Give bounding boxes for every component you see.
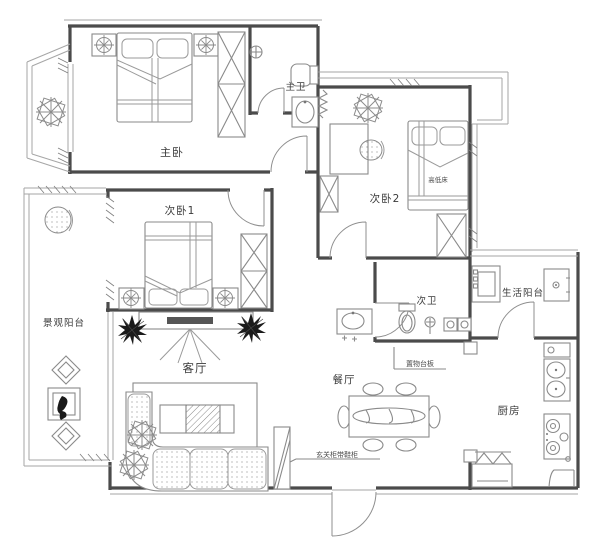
room-label-master-bathroom: 主卫 xyxy=(285,81,306,93)
room-label-living-room: 客厅 xyxy=(183,361,208,375)
dining-chair xyxy=(396,439,416,451)
room-label-dining-room: 餐厅 xyxy=(333,373,356,386)
label-leader-line xyxy=(290,459,380,462)
coffee-table xyxy=(186,405,220,433)
annotation-bunk-bed: 高低床 xyxy=(428,175,448,184)
kitchen-cabinet xyxy=(472,464,512,487)
bedroom-1-wardrobe xyxy=(241,234,267,308)
plant-icon xyxy=(353,93,383,123)
bed xyxy=(145,222,212,308)
room-label-bedroom-1: 次卧1 xyxy=(165,204,196,217)
master-bathroom-fixtures xyxy=(250,46,318,127)
toilet-tank xyxy=(399,304,415,311)
master-bedroom-furniture xyxy=(92,32,245,137)
bedroom-2-wardrobe xyxy=(437,214,466,257)
diamond-decor xyxy=(52,422,80,450)
master-bathroom-door xyxy=(258,88,284,113)
room-label-bedroom-2: 次卧2 xyxy=(370,192,401,205)
dining-table xyxy=(349,396,429,437)
dining-chair xyxy=(363,439,383,451)
hallway-closet xyxy=(320,176,338,212)
bedroom-2-door xyxy=(330,222,366,258)
toilet-tank xyxy=(310,66,318,84)
entry-shoe-cabinet xyxy=(274,427,290,489)
sofa-pillow xyxy=(127,420,157,450)
plant-icon xyxy=(36,97,66,127)
floor-plan-drawing: 主卧 主卫 次卧1 次卧2 次卫 生活阳台 景观阳台 客厅 餐厅 厨房 高低床 … xyxy=(0,0,608,549)
living-room-furniture xyxy=(118,312,380,491)
master-bed xyxy=(117,33,192,122)
outlet-box xyxy=(458,318,471,331)
room-label-utility-balcony: 生活阳台 xyxy=(502,287,544,299)
entry-door xyxy=(332,492,376,536)
corner-counter xyxy=(549,470,574,487)
dish-rack xyxy=(475,452,511,464)
floor-plan: 主卧 主卫 次卧1 次卧2 次卫 生活阳台 景观阳台 客厅 餐厅 厨房 高低床 … xyxy=(0,0,608,549)
bedroom-1-furniture xyxy=(119,222,267,309)
diamond-decor xyxy=(52,356,80,384)
outlet-box xyxy=(444,318,457,331)
wall-art-frame xyxy=(48,388,80,420)
second-bathroom-fixtures xyxy=(337,304,471,342)
dining-chair xyxy=(428,406,440,428)
utility-balcony-door xyxy=(498,302,534,338)
room-label-view-balcony: 景观阳台 xyxy=(43,317,85,329)
room-label-kitchen: 厨房 xyxy=(498,404,521,417)
tv xyxy=(167,317,213,324)
side-table xyxy=(160,405,186,433)
room-label-second-bathroom: 次卫 xyxy=(416,295,437,307)
rattan-chair xyxy=(45,207,71,233)
dining-chair xyxy=(363,383,383,395)
radiator-coil-icon xyxy=(319,90,327,118)
side-table xyxy=(220,405,234,433)
master-wardrobe xyxy=(218,32,245,137)
dining-chair xyxy=(338,406,350,428)
annotation-shelf-board: 置物台板 xyxy=(406,359,434,368)
room-label-master-bedroom: 主卧 xyxy=(160,146,184,159)
kitchen-fixtures xyxy=(472,343,574,487)
bedroom-1-door xyxy=(228,190,264,226)
kitchen-sink xyxy=(544,359,570,401)
desk-chair xyxy=(360,140,382,160)
sofa-pillow xyxy=(119,450,149,480)
master-bedroom-door xyxy=(271,136,307,172)
dining-chair xyxy=(396,383,416,395)
annotation-entry-cabinet: 玄关柜带鞋柜 xyxy=(316,450,358,459)
